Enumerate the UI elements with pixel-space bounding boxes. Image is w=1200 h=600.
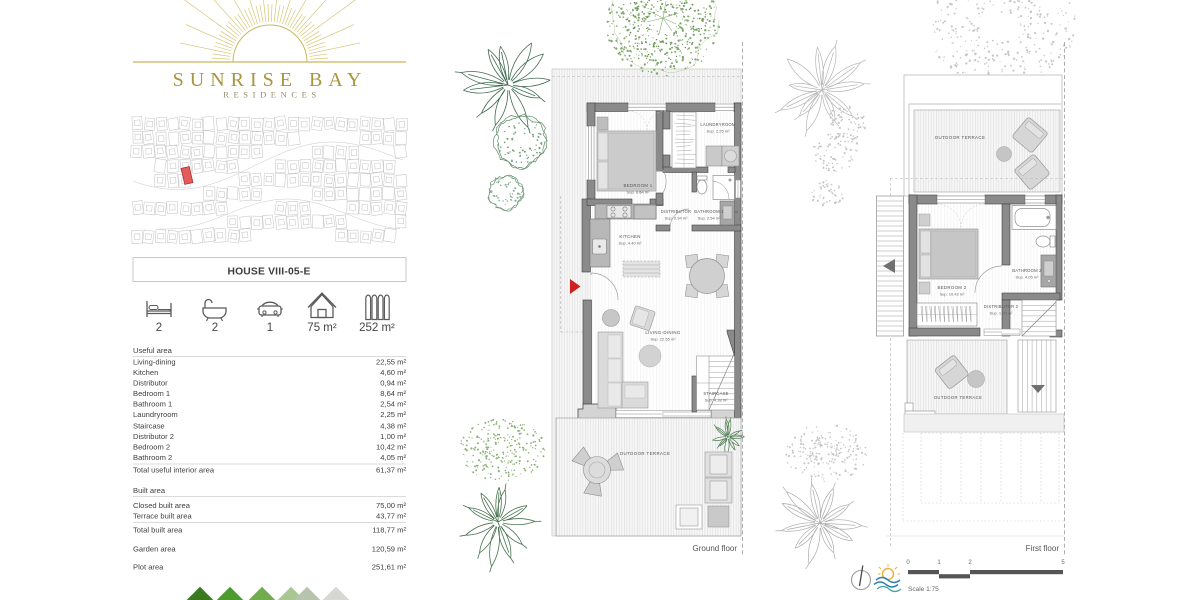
svg-text:Scale 1:75: Scale 1:75 xyxy=(908,586,939,593)
svg-text:OUTDOOR TERRACE: OUTDOOR TERRACE xyxy=(934,395,983,400)
svg-text:Plot area: Plot area xyxy=(133,563,164,572)
svg-text:HOUSE VIII-05-E: HOUSE VIII-05-E xyxy=(227,267,310,278)
svg-text:LAUNDRYROOM: LAUNDRYROOM xyxy=(700,122,735,127)
svg-text:Total useful interior area: Total useful interior area xyxy=(133,466,215,475)
svg-text:120,59 m²: 120,59 m² xyxy=(372,545,407,554)
svg-text:Staircase: Staircase xyxy=(133,422,165,431)
svg-text:First floor: First floor xyxy=(1026,544,1060,553)
svg-text:SUNRISE BAY: SUNRISE BAY xyxy=(173,69,368,91)
svg-text:OUTDOOR TERRACE: OUTDOOR TERRACE xyxy=(935,135,986,140)
svg-text:Terrace built area: Terrace built area xyxy=(133,512,192,521)
svg-text:OUTDOOR TERRACE: OUTDOOR TERRACE xyxy=(620,451,671,456)
svg-text:Garden area: Garden area xyxy=(133,545,176,554)
svg-text:Ground floor: Ground floor xyxy=(693,544,738,553)
svg-text:Sup. 10.42 m²: Sup. 10.42 m² xyxy=(939,292,965,297)
svg-text:Sup. 22.55 m²: Sup. 22.55 m² xyxy=(650,337,676,342)
svg-text:Sup. 2.25 m²: Sup. 2.25 m² xyxy=(707,129,731,134)
svg-text:4,05 m²: 4,05 m² xyxy=(380,453,406,462)
svg-text:75 m²: 75 m² xyxy=(307,322,337,334)
svg-text:Sup. 4.05 m²: Sup. 4.05 m² xyxy=(1016,275,1040,280)
svg-text:Bedroom 2: Bedroom 2 xyxy=(133,443,170,452)
svg-text:Distributor: Distributor xyxy=(133,379,168,388)
svg-text:BEDROOM 1: BEDROOM 1 xyxy=(623,183,652,188)
svg-text:61,37 m²: 61,37 m² xyxy=(376,466,406,475)
svg-text:Sup. 1.00 m²: Sup. 1.00 m² xyxy=(990,311,1014,316)
svg-text:1: 1 xyxy=(267,322,273,334)
svg-text:DISTRIBUTOR: DISTRIBUTOR xyxy=(661,209,692,214)
svg-text:BATHROOM 2: BATHROOM 2 xyxy=(1012,268,1042,273)
svg-text:22,55 m²: 22,55 m² xyxy=(376,358,406,367)
svg-text:251,61 m²: 251,61 m² xyxy=(372,563,407,572)
svg-text:4,60 m²: 4,60 m² xyxy=(380,368,406,377)
svg-text:Sup. 8.64 m²: Sup. 8.64 m² xyxy=(627,190,651,195)
svg-text:STAIRCASE: STAIRCASE xyxy=(703,391,728,396)
svg-text:BATHROOM 1: BATHROOM 1 xyxy=(694,209,724,214)
svg-text:Bathroom 2: Bathroom 2 xyxy=(133,453,172,462)
svg-text:118,77 m²: 118,77 m² xyxy=(372,526,406,535)
svg-text:8,64 m²: 8,64 m² xyxy=(380,389,406,398)
svg-text:KITCHEN: KITCHEN xyxy=(619,234,640,239)
svg-text:Living-dining: Living-dining xyxy=(133,358,176,367)
svg-text:2,54 m²: 2,54 m² xyxy=(380,400,406,409)
svg-text:Sup. 2.54 m²: Sup. 2.54 m² xyxy=(698,216,722,221)
svg-text:Laundryroom: Laundryroom xyxy=(133,410,178,419)
svg-text:0,94 m²: 0,94 m² xyxy=(380,379,406,388)
svg-text:4,38 m²: 4,38 m² xyxy=(380,422,406,431)
svg-text:RESIDENCES: RESIDENCES xyxy=(223,90,320,100)
svg-text:Kitchen: Kitchen xyxy=(133,368,158,377)
svg-text:Sup. 0.94 m²: Sup. 0.94 m² xyxy=(665,216,689,221)
svg-text:Built area: Built area xyxy=(133,486,166,495)
svg-text:Useful area: Useful area xyxy=(133,346,173,355)
svg-text:Bedroom 1: Bedroom 1 xyxy=(133,389,170,398)
svg-text:Distributor 2: Distributor 2 xyxy=(133,432,174,441)
svg-text:BEDROOM 2: BEDROOM 2 xyxy=(937,285,966,290)
svg-text:2: 2 xyxy=(156,322,162,334)
svg-text:75,00 m²: 75,00 m² xyxy=(376,501,406,510)
svg-text:1,00 m²: 1,00 m² xyxy=(380,432,406,441)
svg-text:LIVING-DINING: LIVING-DINING xyxy=(645,330,680,335)
svg-text:Bathroom 1: Bathroom 1 xyxy=(133,400,172,409)
svg-text:Total built area: Total built area xyxy=(133,526,183,535)
svg-text:DISTRIBUTOR 2: DISTRIBUTOR 2 xyxy=(984,304,1019,309)
svg-text:2,25 m²: 2,25 m² xyxy=(380,410,406,419)
svg-text:43,77 m²: 43,77 m² xyxy=(376,512,406,521)
svg-text:10,42 m²: 10,42 m² xyxy=(376,443,406,452)
svg-text:2: 2 xyxy=(212,322,218,334)
svg-text:Sup. 4.40 m²: Sup. 4.40 m² xyxy=(619,241,643,246)
svg-text:Closed built area: Closed built area xyxy=(133,501,191,510)
svg-text:252 m²: 252 m² xyxy=(359,322,395,334)
svg-text:Sup. 4.38 m²: Sup. 4.38 m² xyxy=(705,398,729,403)
